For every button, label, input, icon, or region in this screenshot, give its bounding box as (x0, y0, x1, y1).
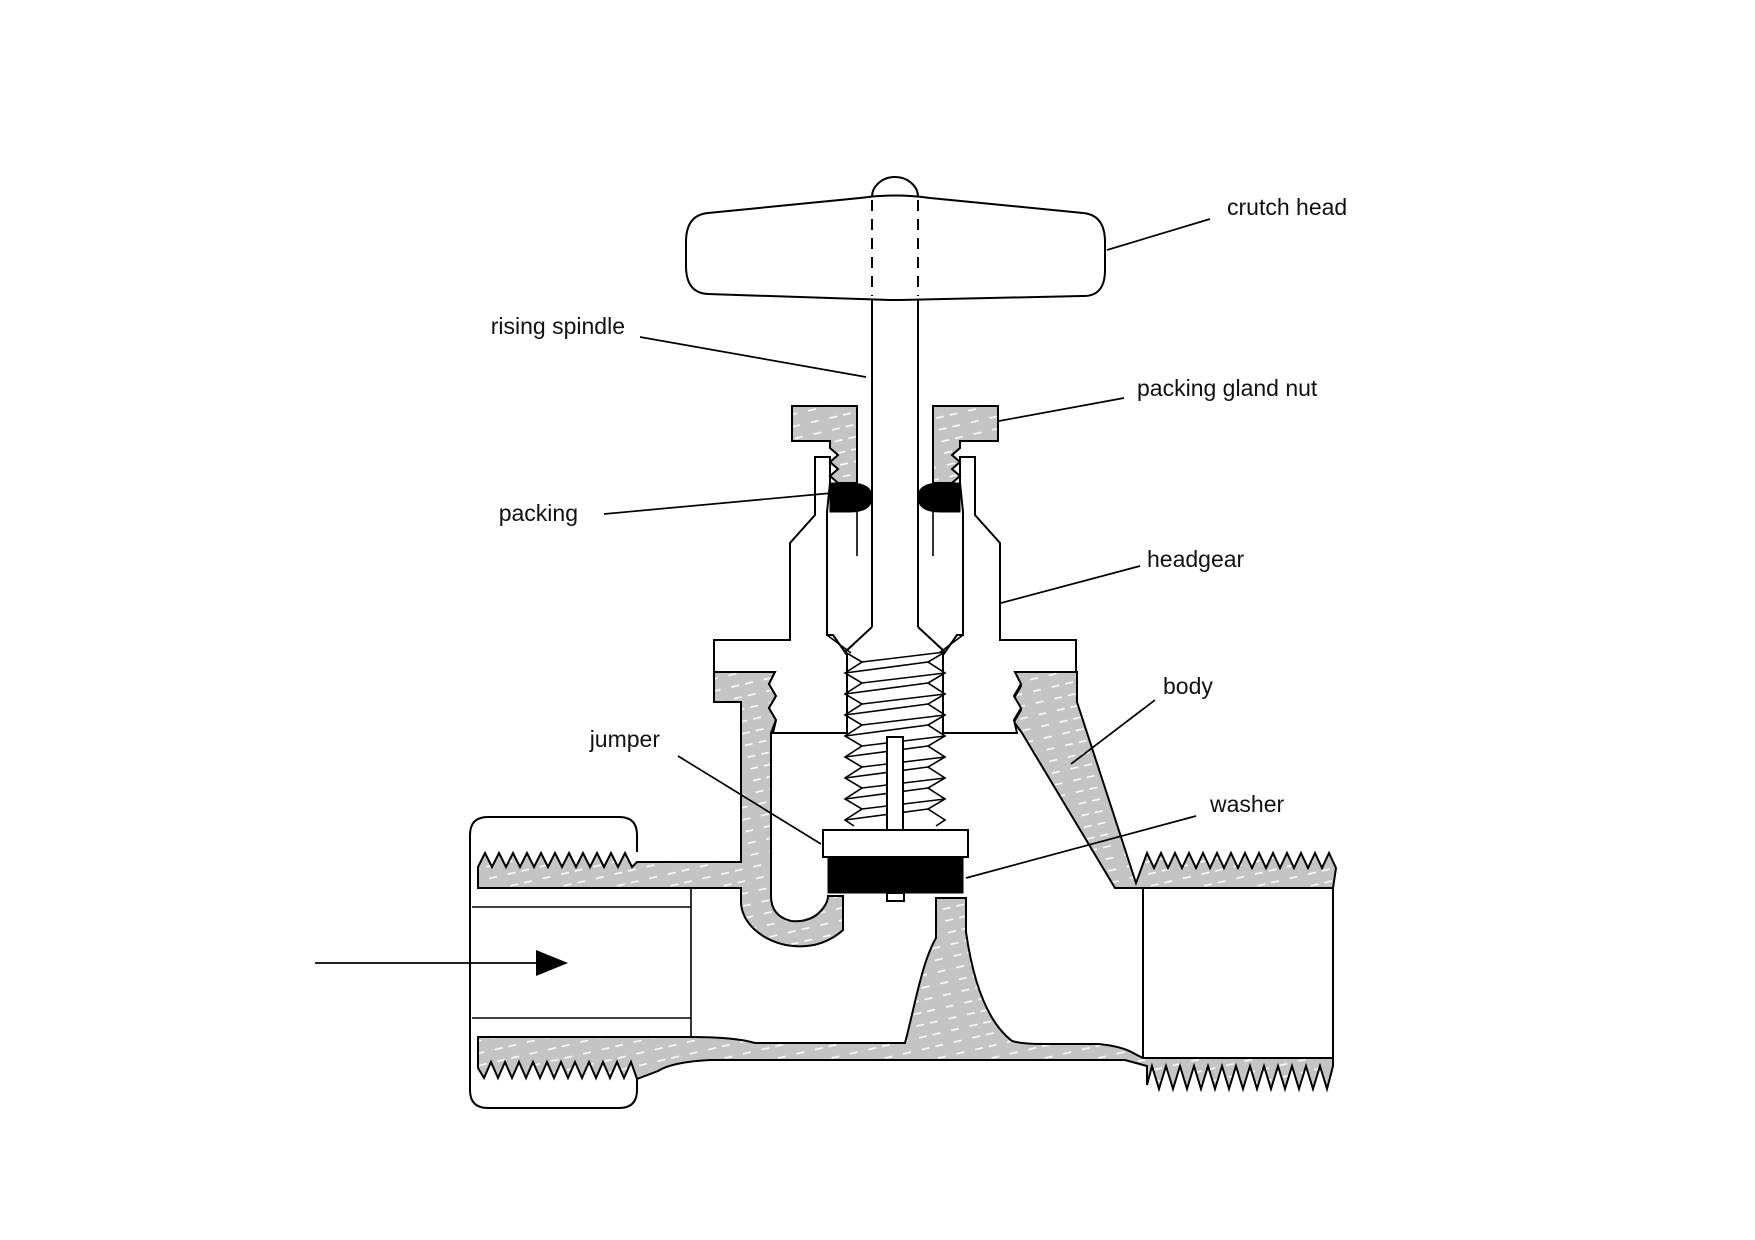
label-rising-spindle: rising spindle (491, 313, 625, 339)
outlet-bore (1143, 888, 1333, 1058)
stop-valve-section-figure: crutch head rising spindle packing gland… (0, 0, 1755, 1240)
label-jumper: jumper (589, 726, 661, 752)
label-washer: washer (1209, 791, 1284, 817)
label-packing: packing (499, 500, 578, 526)
crutch-head-part (686, 177, 1105, 300)
label-body: body (1163, 673, 1213, 699)
washer-part (828, 857, 963, 893)
packing-part (830, 483, 960, 512)
valve-body-right (1014, 672, 1336, 888)
leader-lines (604, 219, 1210, 878)
label-headgear: headgear (1147, 546, 1245, 572)
rising-spindle-shaft (845, 300, 945, 652)
label-crutch-head: crutch head (1227, 194, 1347, 220)
valve-diagram: crutch head rising spindle packing gland… (0, 0, 1755, 1240)
label-packing-gland-nut: packing gland nut (1137, 375, 1318, 401)
